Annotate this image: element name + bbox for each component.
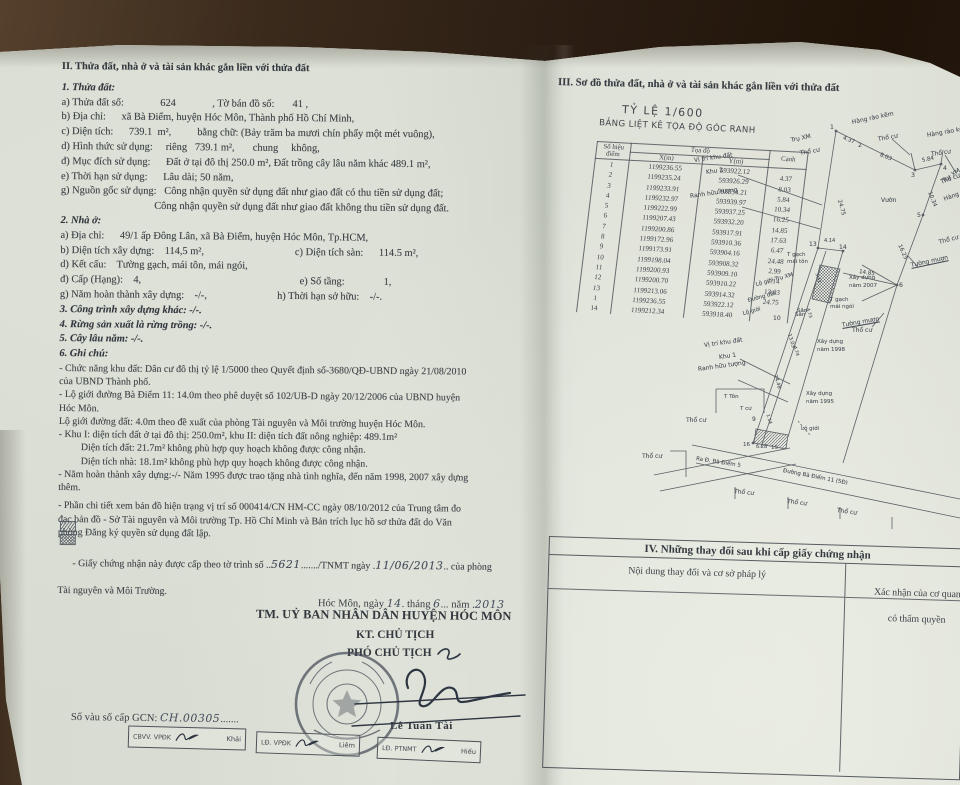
map-label: 2	[858, 142, 862, 149]
initial-box-role: LĐ. PTNMT	[382, 744, 417, 753]
map-label: Thổ cư	[686, 417, 706, 424]
initial-box: LĐ. PTNMT Hiếu	[377, 737, 482, 764]
map-label: 5	[917, 212, 921, 219]
left-page: II. Thửa đất, nhà ở và tài sản khác gắn …	[57, 60, 550, 601]
handwritten-submission-number: 5621	[271, 558, 301, 571]
left-edge-shadow	[0, 430, 26, 785]
handwritten-gcn-number: CH.00305	[160, 711, 220, 725]
map-label: T cư	[740, 406, 752, 412]
section-iv-col2: Xác nhận của cơ quan có thẩm quyền	[841, 564, 960, 775]
initial-signature-squiggle	[174, 731, 200, 746]
map-label: 13	[809, 241, 817, 248]
map-label: T Tôn	[724, 394, 739, 400]
map-label: mái tôn	[787, 259, 808, 265]
map-label: Xây dựng	[806, 391, 832, 397]
house-details: a) Địa chỉ: 49/1 ấp Đông Lân, xã Bà Điểm…	[60, 229, 549, 307]
section-iv-col1: Nội dung thay đổi và cơ sở pháp lý	[543, 555, 846, 772]
kt-chu-tich: KT. CHỦ TỊCH	[356, 629, 434, 641]
map-label: T gạch	[830, 297, 848, 303]
map-label: 4.14	[824, 238, 835, 244]
initial-box-name: Khải	[226, 735, 241, 743]
map-label: 10	[773, 315, 781, 322]
map-label: năm 2007	[849, 283, 877, 289]
parcel-details: a) Thửa đất số: 624 , Tờ bán đồ số: 41 ,…	[61, 96, 550, 219]
map-label: Xây dựng	[849, 275, 875, 281]
map-label: 1	[830, 124, 834, 131]
map-label: Sân	[795, 312, 805, 318]
initial-box-role: CBVV. VPĐK	[133, 733, 171, 742]
photographed-document: II. Thửa đất, nhà ở và tài sản khác gắn …	[0, 0, 960, 785]
handwritten-date: 11/06/2013	[375, 559, 443, 573]
map-label: 14	[839, 244, 847, 251]
certificate-issue-line: - Giấy chứng nhận này được cấp theo tờ t…	[57, 543, 545, 588]
initial-box-name: Hiếu	[461, 747, 476, 756]
initial-box-name: Liêm	[339, 741, 355, 750]
map-label: 4	[943, 165, 947, 172]
map-label: 6.28	[756, 444, 767, 450]
hatch-swatch-land	[60, 521, 76, 532]
initial-box: CBVV. VPĐK Khải	[128, 725, 247, 750]
map-label: 9	[752, 416, 756, 423]
map-label: Lộ giới	[801, 426, 819, 432]
map-label: Vườn	[881, 197, 896, 204]
map-label: Thổ cư	[852, 327, 872, 334]
cadastral-sketch-map: 14.3728.0335.844Trụ XMThổ cưHàng rào kẽm…	[640, 95, 960, 540]
map-label: 6	[899, 282, 903, 289]
map-label: Xây dựng	[817, 339, 843, 345]
col-header-point: Số hiệu điểm	[595, 142, 631, 161]
map-label: T gạch	[787, 252, 805, 258]
section-iv-table: IV. Những thay đổi sau khi cấp giấy chứn…	[542, 536, 960, 780]
notes-block: - Chức năng khu đất: Dân cư đô thị tỷ lệ…	[58, 362, 547, 499]
initial-signature-squiggle	[419, 743, 446, 758]
map-label: 3	[911, 172, 915, 179]
map-label: mái ngói	[830, 304, 854, 310]
map-label: Thổ cư	[642, 453, 662, 460]
map-label: năm 1995	[806, 399, 834, 405]
initial-box: LĐ. VPĐK Liêm	[256, 731, 361, 757]
authority-line: TM. UỶ BAN NHÂN DÂN HUYỆN HÓC MÔN	[256, 607, 512, 624]
map-label: 16	[743, 442, 750, 448]
initial-signature-squiggle	[294, 737, 320, 752]
section-iv-col2-header: Xác nhận của cơ quan có thẩm quyền	[846, 564, 960, 602]
map-label: năm 1998	[817, 347, 845, 353]
hatch-swatch-house	[60, 534, 76, 545]
notes-block-2: - Phần chi tiết xem bản đồ hiện trạng vị…	[58, 499, 546, 543]
signature-ink	[330, 648, 560, 743]
initial-box-role: LĐ. VPĐK	[261, 738, 291, 747]
map-label: 15	[771, 445, 778, 451]
